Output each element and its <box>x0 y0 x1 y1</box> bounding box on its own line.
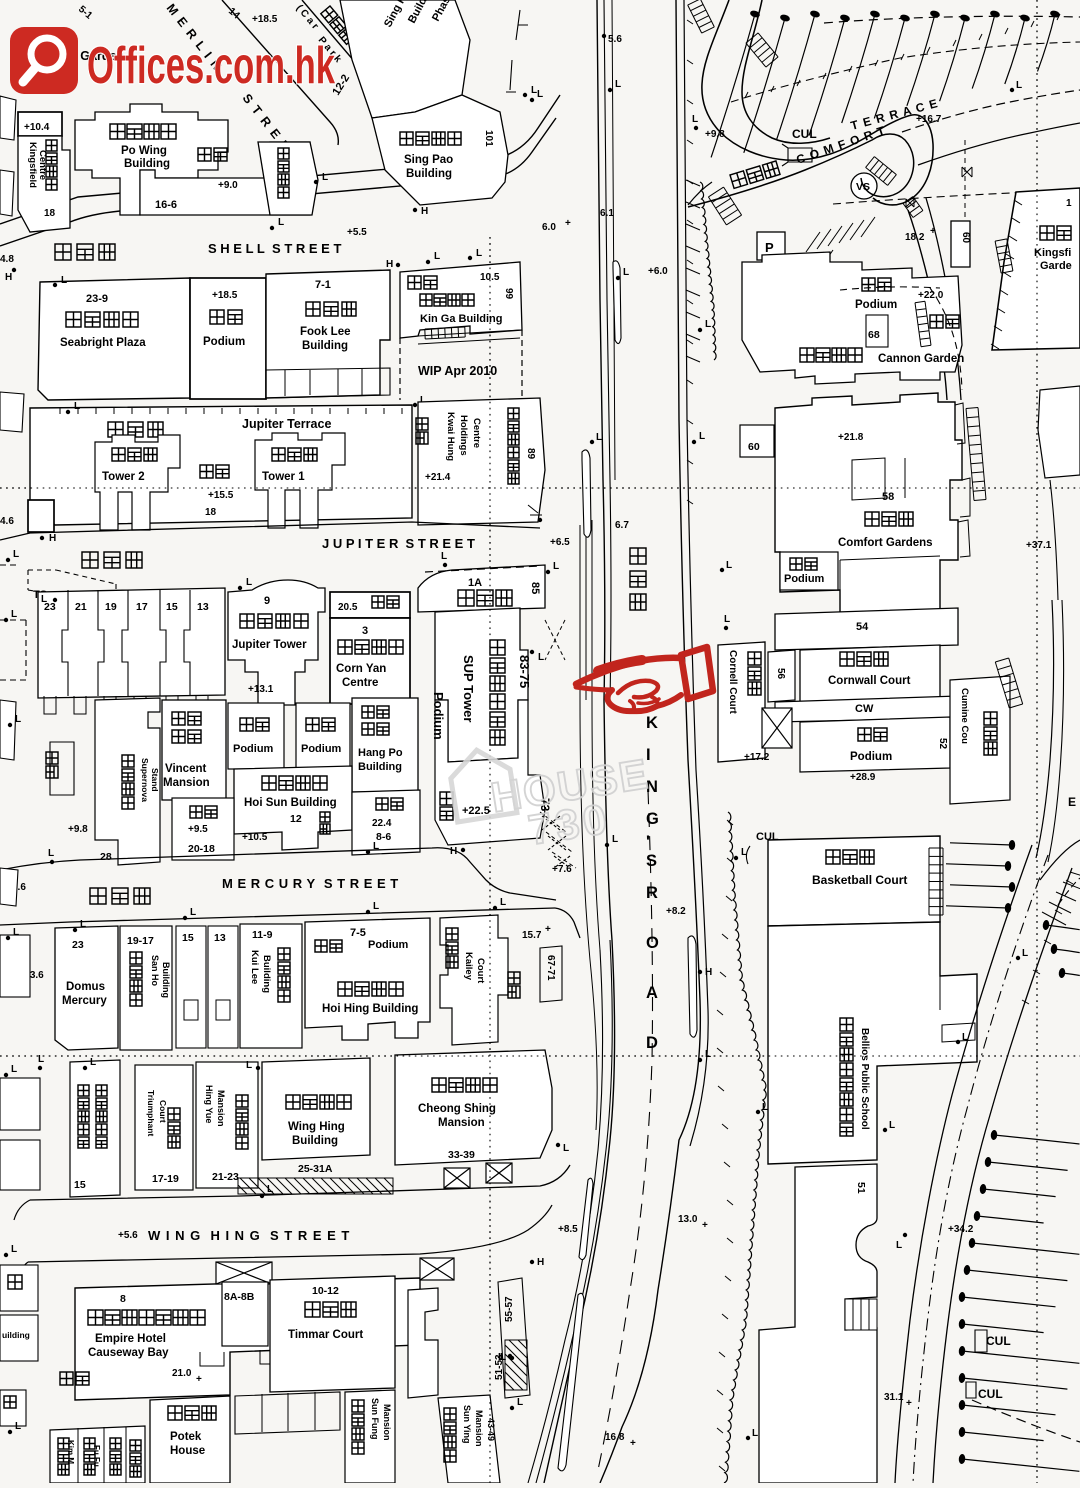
svg-text:43-49: 43-49 <box>486 1418 496 1441</box>
svg-text:52: 52 <box>937 738 948 750</box>
svg-text:Kim M: Kim M <box>66 1440 75 1464</box>
svg-text:L: L <box>11 1064 17 1075</box>
svg-text:Kailey: Kailey <box>463 952 474 981</box>
svg-text:L: L <box>441 551 447 562</box>
svg-text:Supernova: Supernova <box>140 758 150 802</box>
svg-text:+: + <box>906 1398 912 1409</box>
svg-text:L: L <box>896 1240 902 1251</box>
svg-text:Bellios Public School: Bellios Public School <box>859 1028 870 1130</box>
svg-text:L: L <box>476 248 482 259</box>
svg-text:+10.4: +10.4 <box>24 122 50 133</box>
svg-text:Podium: Podium <box>850 751 892 763</box>
svg-text:Kui Lee: Kui Lee <box>249 950 260 984</box>
svg-text:Sing Pao: Sing Pao <box>404 154 453 166</box>
svg-text:+16.7: +16.7 <box>916 114 942 125</box>
svg-text:85: 85 <box>529 582 541 594</box>
svg-text:Garde: Garde <box>1040 260 1072 272</box>
svg-text:19-17: 19-17 <box>127 935 154 947</box>
svg-text:25-31A: 25-31A <box>298 1163 333 1175</box>
svg-text:L: L <box>267 1184 273 1195</box>
svg-text:Kingsfi: Kingsfi <box>1034 247 1071 259</box>
svg-text:19: 19 <box>105 601 117 613</box>
svg-text:6.1: 6.1 <box>600 208 614 219</box>
svg-text:+: + <box>545 924 551 935</box>
svg-text:23-9: 23-9 <box>86 293 108 305</box>
svg-text:Kwai Hung: Kwai Hung <box>445 412 456 461</box>
svg-text:L: L <box>537 89 543 100</box>
svg-text:+21.4: +21.4 <box>425 472 451 483</box>
svg-text:+17.2: +17.2 <box>744 752 770 763</box>
svg-text:E: E <box>1068 795 1076 809</box>
svg-text:+9.5: +9.5 <box>188 824 208 835</box>
svg-text:17-19: 17-19 <box>152 1173 179 1185</box>
svg-text:Centre: Centre <box>342 677 378 689</box>
svg-text:L: L <box>13 927 19 938</box>
svg-text:Building: Building <box>302 340 348 352</box>
svg-text:+21.8: +21.8 <box>838 432 864 443</box>
svg-text:Mansion: Mansion <box>216 1090 226 1127</box>
svg-text:M E R C U R Y S T R E E T: M E R C U R Y S T R E E T <box>222 876 399 891</box>
svg-text:+5.6: +5.6 <box>118 1230 138 1241</box>
svg-text:21.0: 21.0 <box>172 1368 192 1379</box>
svg-text:15: 15 <box>182 932 194 944</box>
svg-text:Triumphant: Triumphant <box>146 1090 156 1136</box>
svg-text:16.8: 16.8 <box>605 1432 625 1443</box>
svg-text:H: H <box>537 1257 544 1268</box>
svg-text:Cannon Garden: Cannon Garden <box>878 353 964 365</box>
svg-text:L: L <box>889 1120 895 1131</box>
svg-text:Fu Fu: Fu Fu <box>92 1445 101 1467</box>
svg-text:House: House <box>170 1445 205 1457</box>
svg-text:H: H <box>386 259 393 270</box>
svg-text:Jupiter Tower: Jupiter Tower <box>232 639 307 651</box>
svg-text:Podium: Podium <box>203 336 245 348</box>
svg-text:60: 60 <box>960 232 971 244</box>
svg-text:89: 89 <box>525 448 536 460</box>
svg-text:L: L <box>596 432 602 443</box>
svg-text:Fook Lee: Fook Lee <box>300 326 350 338</box>
svg-text:Offices.com.hk: Offices.com.hk <box>87 37 335 95</box>
svg-text:+: + <box>565 218 571 229</box>
svg-text:55-57: 55-57 <box>504 1296 515 1322</box>
svg-text:Comfort Gardens: Comfort Gardens <box>838 537 933 549</box>
svg-text:Building: Building <box>406 168 452 180</box>
svg-text:60: 60 <box>748 441 760 453</box>
svg-text:L: L <box>48 848 54 859</box>
svg-text:Mercury: Mercury <box>62 995 107 1007</box>
svg-text:Potek: Potek <box>170 1431 202 1443</box>
svg-text:Hing Yue: Hing Yue <box>204 1085 214 1123</box>
svg-text:1: 1 <box>1066 198 1072 209</box>
svg-text:Cumine Cou: Cumine Cou <box>959 688 970 744</box>
svg-text:L: L <box>74 401 80 412</box>
svg-text:L: L <box>705 1049 711 1060</box>
svg-text:Podium: Podium <box>233 743 274 755</box>
svg-text:L: L <box>11 609 17 620</box>
svg-text:1A: 1A <box>468 577 482 589</box>
svg-text:Building: Building <box>358 761 402 773</box>
svg-text:+28.9: +28.9 <box>850 772 876 783</box>
svg-text:Domus: Domus <box>66 981 105 993</box>
svg-text:L: L <box>741 847 747 858</box>
svg-text:+9.8: +9.8 <box>705 129 725 140</box>
svg-text:L: L <box>1016 80 1022 91</box>
svg-text:33-39: 33-39 <box>448 1149 475 1161</box>
svg-text:L: L <box>322 172 328 183</box>
svg-text:21-23: 21-23 <box>212 1171 239 1183</box>
svg-text:W I N G H I N G S T R E E T: W I N G H I N G S T R E E T <box>148 1228 350 1243</box>
svg-text:6.0: 6.0 <box>542 222 556 233</box>
svg-text:D: D <box>646 1034 658 1052</box>
svg-text:31.1: 31.1 <box>884 1392 904 1403</box>
svg-text:L: L <box>246 1060 252 1071</box>
svg-text:Hoi Hing Building: Hoi Hing Building <box>322 1003 418 1015</box>
svg-text:58: 58 <box>882 491 894 503</box>
svg-text:Causeway Bay: Causeway Bay <box>88 1347 169 1359</box>
svg-text:L: L <box>373 841 379 852</box>
svg-text:Holdings: Holdings <box>458 415 469 456</box>
svg-text:L: L <box>41 594 47 605</box>
svg-text:Basketball Court: Basketball Court <box>812 873 907 887</box>
svg-text:Court: Court <box>475 958 486 984</box>
svg-text:+13.1: +13.1 <box>248 684 274 695</box>
svg-text:Mansion: Mansion <box>163 777 210 789</box>
svg-text:L: L <box>15 1421 21 1432</box>
svg-text:Building: Building <box>124 158 170 170</box>
svg-text:Mansion: Mansion <box>474 1410 484 1447</box>
svg-text:L: L <box>1022 948 1028 959</box>
svg-text:+34.2: +34.2 <box>948 1224 974 1235</box>
svg-text:L: L <box>15 714 21 725</box>
svg-text:L: L <box>500 897 506 908</box>
svg-text:+: + <box>702 1220 708 1231</box>
svg-text:L: L <box>434 251 440 262</box>
svg-text:Corn Yan: Corn Yan <box>336 663 386 675</box>
svg-text:L: L <box>517 1397 523 1408</box>
svg-text:83-75: 83-75 <box>517 655 532 688</box>
svg-text:CUL: CUL <box>986 1334 1011 1348</box>
svg-text:Podium: Podium <box>431 692 446 740</box>
svg-text:15.7: 15.7 <box>522 930 542 941</box>
svg-text:9: 9 <box>264 595 270 607</box>
svg-text:Hang Po: Hang Po <box>358 747 403 759</box>
svg-text:A: A <box>646 984 658 1002</box>
svg-text:L: L <box>705 319 711 330</box>
svg-text:3: 3 <box>362 625 368 637</box>
svg-text:Court: Court <box>158 1100 168 1123</box>
svg-text:L: L <box>699 431 705 442</box>
svg-text:20.5: 20.5 <box>338 602 358 613</box>
svg-text:11-9: 11-9 <box>252 929 273 941</box>
svg-text:L: L <box>13 549 19 560</box>
svg-text:Podium: Podium <box>784 573 825 585</box>
svg-text:18: 18 <box>44 208 56 219</box>
svg-text:Cornell Court: Cornell Court <box>727 650 738 715</box>
svg-text:Cheong Shing: Cheong Shing <box>418 1103 496 1115</box>
svg-text:18: 18 <box>205 507 217 518</box>
svg-text:+6.5: +6.5 <box>550 537 570 548</box>
svg-text:San Ho: San Ho <box>150 955 160 987</box>
svg-text:Podium: Podium <box>301 743 342 755</box>
svg-text:Cornwall Court: Cornwall Court <box>828 675 911 687</box>
svg-text:23: 23 <box>72 939 84 951</box>
svg-text:4.6: 4.6 <box>0 516 14 527</box>
svg-text:67-71: 67-71 <box>545 955 556 981</box>
svg-text:28: 28 <box>100 851 112 863</box>
svg-text:J U P I T E R S T R E E T: J U P I T E R S T R E E T <box>322 536 475 551</box>
svg-text:H: H <box>705 967 712 978</box>
svg-text:O: O <box>646 934 659 952</box>
svg-text:17: 17 <box>136 601 148 613</box>
svg-text:S H E L L S T R E E T: S H E L L S T R E E T <box>208 241 341 256</box>
svg-text:L: L <box>726 560 732 571</box>
svg-text:7-5: 7-5 <box>350 927 366 939</box>
svg-text:+: + <box>930 226 936 237</box>
svg-text:K: K <box>646 714 658 732</box>
svg-text:Podium: Podium <box>855 299 897 311</box>
svg-text:+6.0: +6.0 <box>648 266 668 277</box>
svg-text:Mansion: Mansion <box>382 1404 392 1441</box>
svg-text:Wing Hing: Wing Hing <box>288 1121 345 1133</box>
svg-text:H: H <box>49 533 56 544</box>
svg-text:5.6: 5.6 <box>608 34 622 45</box>
svg-text:Tower 2: Tower 2 <box>102 471 145 483</box>
svg-text:56: 56 <box>775 668 786 680</box>
svg-text:+18.5: +18.5 <box>212 290 238 301</box>
svg-text:99: 99 <box>503 288 514 300</box>
svg-text:P: P <box>765 240 774 255</box>
svg-text:7-1: 7-1 <box>315 279 331 291</box>
svg-text:101: 101 <box>483 130 494 147</box>
svg-text:S: S <box>646 852 657 870</box>
svg-text:L: L <box>962 1032 968 1043</box>
svg-text:CUL: CUL <box>978 1387 1003 1401</box>
svg-text:Building: Building <box>261 955 272 993</box>
svg-text:+18.5: +18.5 <box>252 14 278 25</box>
svg-text:+8.5: +8.5 <box>558 1224 578 1235</box>
svg-text:+: + <box>630 1438 636 1449</box>
svg-text:21: 21 <box>75 601 87 613</box>
svg-text:H: H <box>5 272 12 283</box>
svg-text:L: L <box>61 275 67 286</box>
svg-text:Building: Building <box>292 1135 338 1147</box>
svg-text:8A-8B: 8A-8B <box>224 1291 255 1303</box>
svg-text:CUL: CUL <box>792 127 817 141</box>
svg-text:4.8: 4.8 <box>0 254 14 265</box>
svg-text:L: L <box>90 1057 96 1068</box>
svg-text:Sun Ying: Sun Ying <box>462 1405 472 1444</box>
svg-text:13.0: 13.0 <box>678 1214 698 1225</box>
svg-text:8: 8 <box>120 1293 126 1305</box>
svg-text:Building: Building <box>161 962 171 998</box>
svg-text:Sun Fung: Sun Fung <box>370 1398 380 1440</box>
svg-text:+22.0: +22.0 <box>918 290 944 301</box>
svg-text:15: 15 <box>166 601 178 613</box>
svg-text:+: + <box>196 1374 202 1385</box>
svg-text:CW: CW <box>855 703 874 715</box>
svg-text:Kingsfield: Kingsfield <box>27 142 38 188</box>
svg-text:12: 12 <box>290 813 302 825</box>
svg-text:Stand: Stand <box>150 768 160 792</box>
svg-text:Mansion: Mansion <box>438 1117 485 1129</box>
svg-text:+9.8: +9.8 <box>68 824 88 835</box>
svg-text:Empire Hotel: Empire Hotel <box>95 1333 166 1345</box>
svg-text:G: G <box>646 810 659 828</box>
svg-text:6.7: 6.7 <box>615 520 629 531</box>
svg-text:+37.1: +37.1 <box>1026 540 1052 551</box>
svg-text:22.4: 22.4 <box>372 818 392 829</box>
svg-text:R: R <box>646 884 658 902</box>
svg-text:': ' <box>646 833 650 851</box>
svg-text:Centre: Centre <box>471 418 482 448</box>
svg-text:L: L <box>373 901 379 912</box>
svg-text:L: L <box>11 1244 17 1255</box>
svg-text:uilding: uilding <box>2 1330 30 1340</box>
svg-text:L: L <box>692 114 698 125</box>
svg-text:15: 15 <box>74 1179 86 1191</box>
svg-text:16-6: 16-6 <box>155 199 177 211</box>
svg-text:51: 51 <box>855 1182 867 1194</box>
svg-text:L: L <box>538 652 544 663</box>
svg-text:L: L <box>752 1428 758 1439</box>
svg-text:H: H <box>421 206 428 217</box>
svg-text:Vincent: Vincent <box>165 763 206 775</box>
svg-text:Timmar Court: Timmar Court <box>288 1329 363 1341</box>
svg-text:WIP Apr 2010: WIP Apr 2010 <box>418 364 497 378</box>
svg-text:54: 54 <box>856 621 869 633</box>
svg-text:Seabright Plaza: Seabright Plaza <box>60 337 146 349</box>
svg-text:Centre: Centre <box>37 150 48 180</box>
svg-text:L: L <box>500 1352 506 1363</box>
svg-text:+9.0: +9.0 <box>218 180 238 191</box>
svg-text:L: L <box>563 1143 569 1154</box>
svg-text:L: L <box>246 577 252 588</box>
svg-text:+10.5: +10.5 <box>242 832 268 843</box>
svg-text:+7.6: +7.6 <box>552 864 572 875</box>
svg-text:Podium: Podium <box>368 939 409 951</box>
svg-text:Hoi Sun Building: Hoi Sun Building <box>244 797 337 809</box>
svg-text:Jupiter Terrace: Jupiter Terrace <box>242 417 331 431</box>
svg-text:Tower 1: Tower 1 <box>262 471 305 483</box>
svg-text:10-12: 10-12 <box>312 1285 339 1297</box>
svg-text:L: L <box>553 561 559 572</box>
svg-text:SUP Tower: SUP Tower <box>461 655 476 722</box>
svg-text:68: 68 <box>868 329 880 341</box>
svg-text:18.2: 18.2 <box>905 232 925 243</box>
svg-text:L: L <box>190 907 196 918</box>
svg-text:+8.2: +8.2 <box>666 906 686 917</box>
svg-text:L: L <box>762 1102 768 1113</box>
svg-text:13: 13 <box>214 932 226 944</box>
svg-text:L: L <box>80 919 86 930</box>
svg-text:13: 13 <box>197 601 209 613</box>
svg-text:L: L <box>278 217 284 228</box>
svg-text:L: L <box>615 79 621 90</box>
svg-text:20-18: 20-18 <box>188 843 215 855</box>
svg-text:+5.5: +5.5 <box>347 227 367 238</box>
svg-text:+15.5: +15.5 <box>208 490 234 501</box>
svg-text:L: L <box>623 267 629 278</box>
svg-text:Po Wing: Po Wing <box>121 145 167 157</box>
svg-text:L: L <box>724 614 730 625</box>
